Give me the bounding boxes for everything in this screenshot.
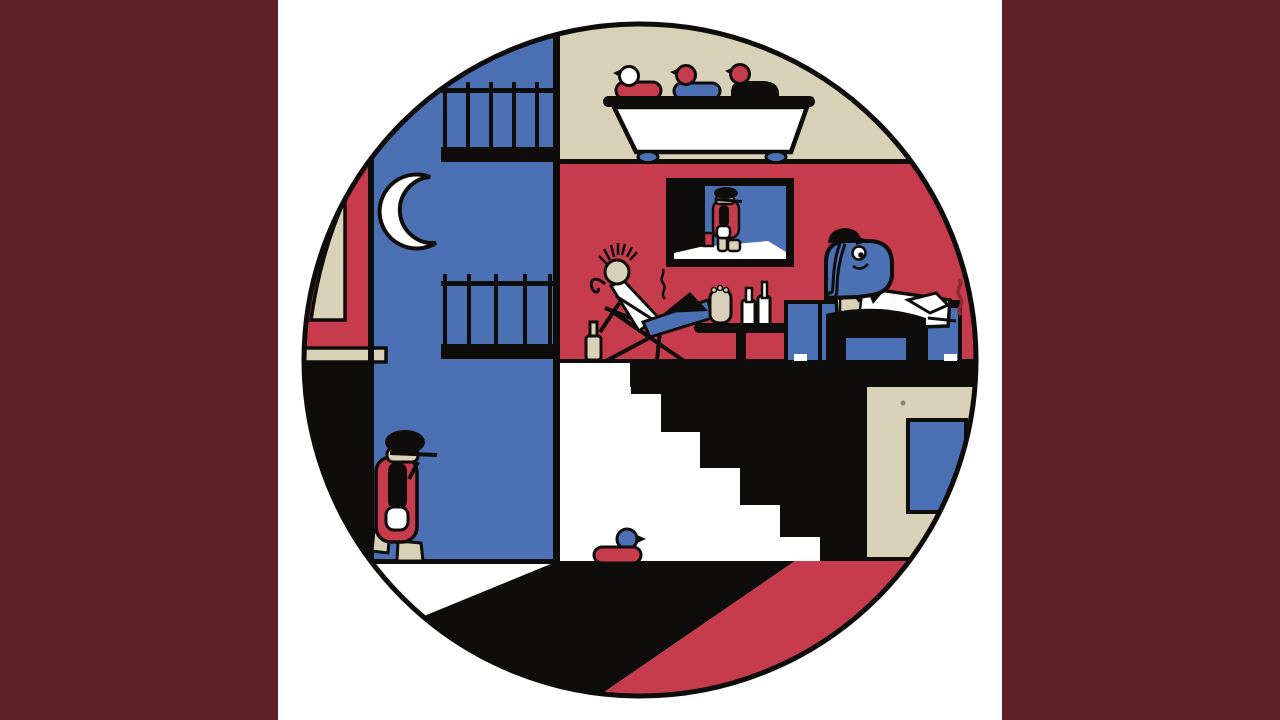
table-bottle: [758, 296, 770, 326]
couch-leg-gap: [944, 354, 957, 361]
bare-foot: [710, 286, 731, 324]
tub-foot: [638, 152, 658, 163]
couch-left-arm: [786, 302, 820, 362]
wall-edge-line-left: [368, 158, 374, 563]
tub-body: [614, 107, 807, 152]
right-wall-edge-line: [861, 387, 867, 562]
couch-leg-gap: [794, 354, 807, 361]
rubber-duck-body: [594, 547, 641, 563]
tv-picture: [666, 178, 794, 267]
wall-speck: [901, 401, 906, 406]
table-leg: [736, 333, 746, 362]
tv-walker-hat: [714, 187, 738, 199]
walker-hat: [385, 430, 425, 454]
walker-pouch: [386, 507, 408, 530]
tub-foot: [766, 152, 786, 163]
lower-balcony-base: [441, 344, 558, 359]
tv-suitcase: [704, 233, 713, 246]
walker-coat-opening: [388, 462, 407, 510]
album-art-page: [0, 0, 1280, 720]
left-maroon-bar: [0, 0, 278, 720]
lower-balcony-rail: [441, 281, 558, 286]
album-art-canvas: [0, 0, 1280, 720]
table-top: [694, 323, 788, 333]
right-maroon-bar: [1002, 0, 1280, 720]
upper-balcony-base: [441, 147, 558, 162]
table-bottle: [742, 300, 755, 326]
walker-boot-front: [397, 541, 423, 561]
elephant-eye: [853, 247, 866, 260]
upper-balcony-rail: [441, 88, 558, 93]
